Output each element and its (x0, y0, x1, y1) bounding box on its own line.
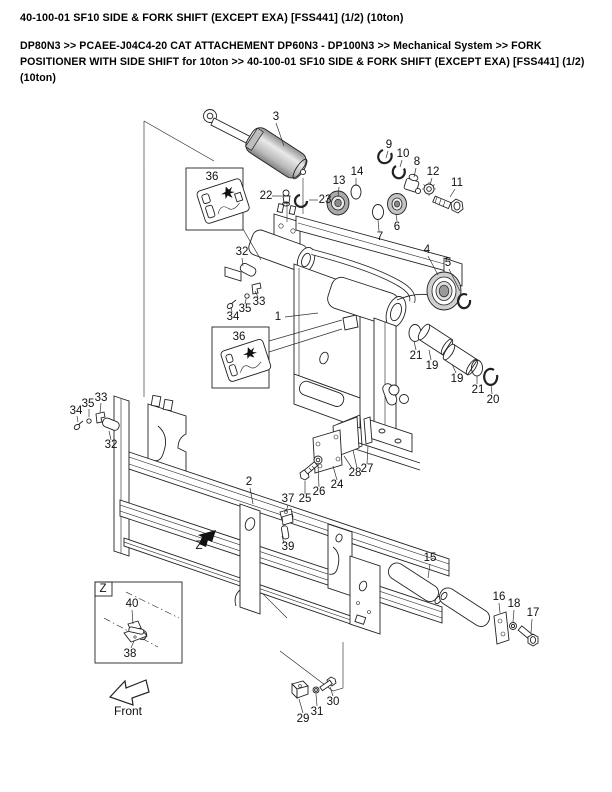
leader-lines (77, 123, 532, 713)
pin-cluster-left (73, 412, 120, 432)
bottom-fasteners-29-31 (292, 677, 336, 698)
front-label: Front (114, 704, 142, 718)
detail-view-z-box (95, 582, 182, 663)
part-37-39-stopper (280, 509, 293, 539)
parts-catalog-page: 40-100-01 SF10 SIDE & FORK SHIFT (EXCEPT… (0, 0, 612, 792)
front-direction-arrow (110, 680, 149, 705)
plate-stack-24-28 (300, 415, 372, 480)
exploded-parts-diagram (0, 0, 612, 792)
